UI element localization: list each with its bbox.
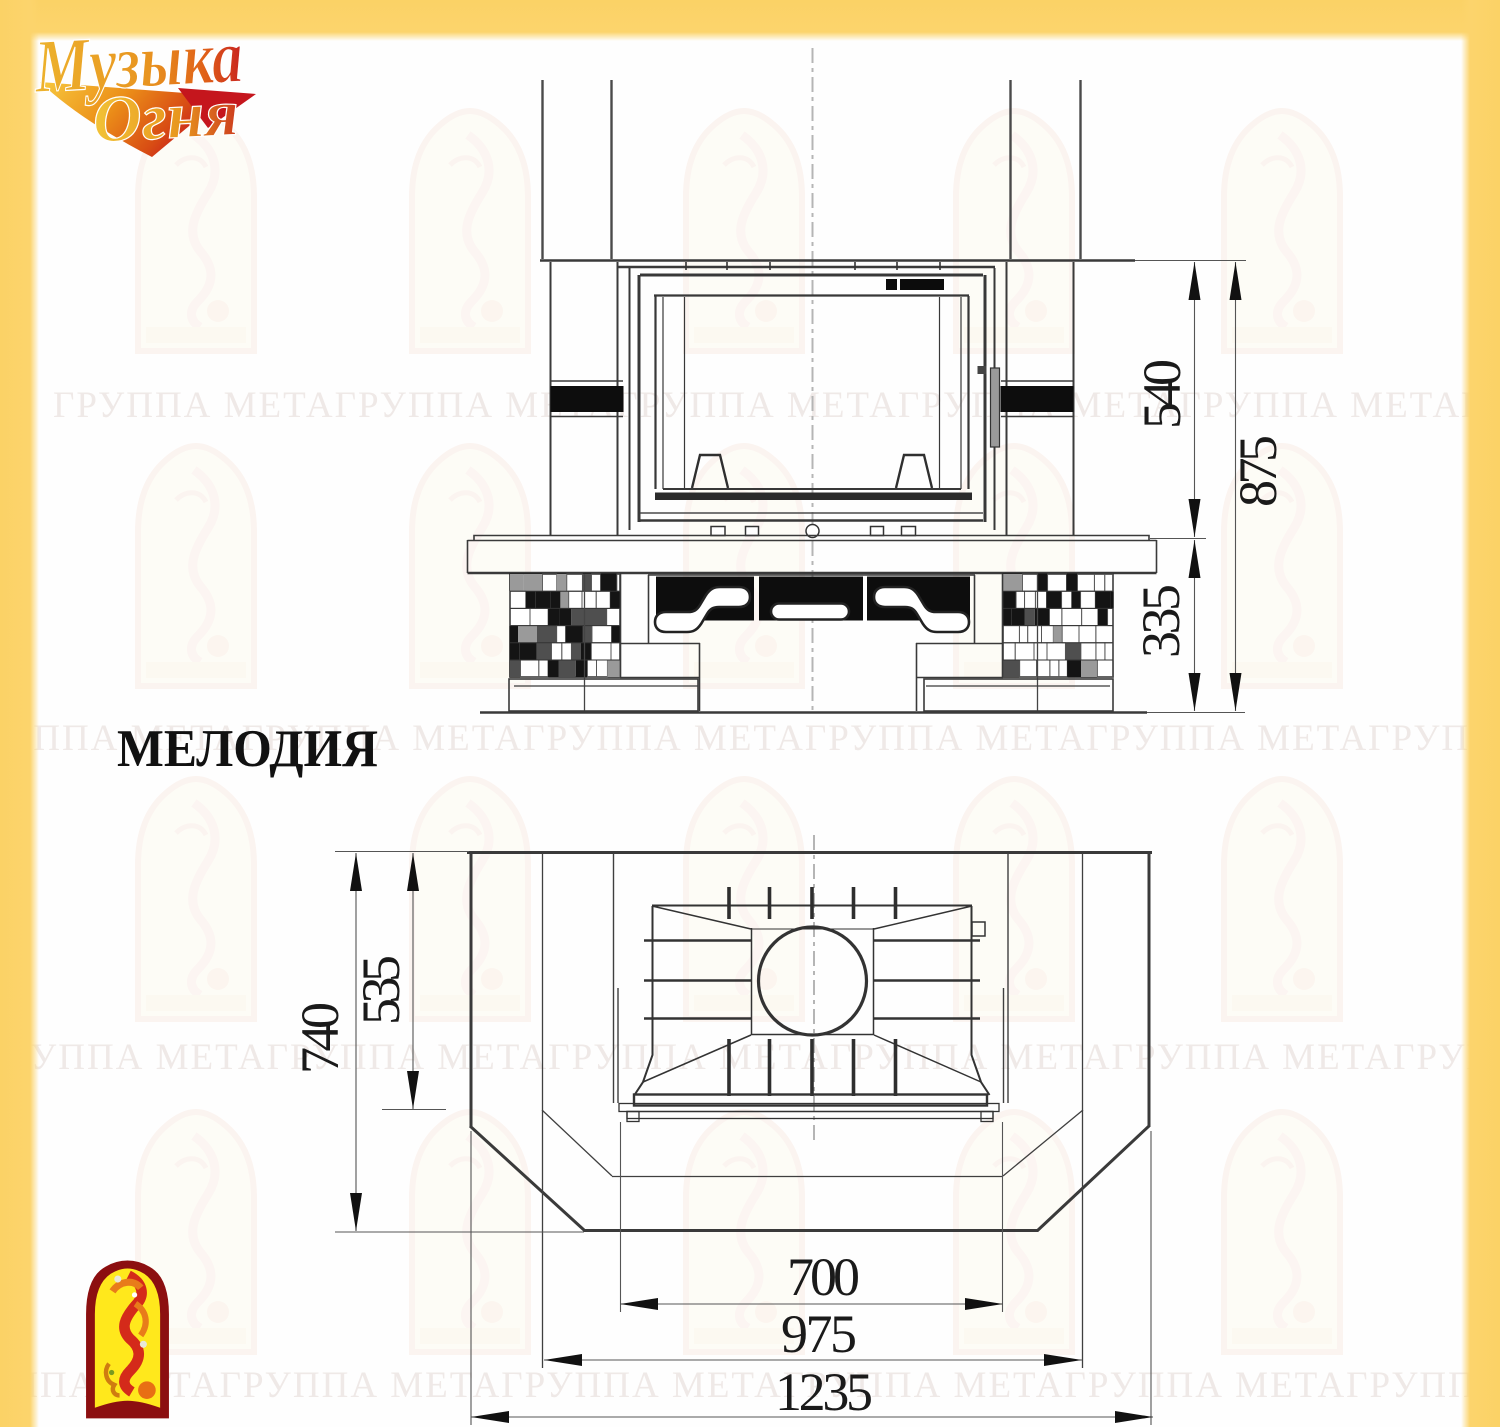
svg-text:МЕЛОДИЯ: МЕЛОДИЯ: [117, 720, 378, 778]
svg-text:Огня: Огня: [91, 76, 241, 157]
svg-text:535: 535: [351, 955, 411, 1025]
svg-text:700: 700: [787, 1247, 860, 1307]
svg-text:975: 975: [781, 1304, 857, 1364]
svg-text:1235: 1235: [775, 1362, 873, 1422]
svg-text:335: 335: [1131, 584, 1191, 658]
svg-text:540: 540: [1132, 359, 1192, 429]
svg-text:875: 875: [1228, 435, 1288, 507]
svg-text:740: 740: [290, 1002, 350, 1074]
